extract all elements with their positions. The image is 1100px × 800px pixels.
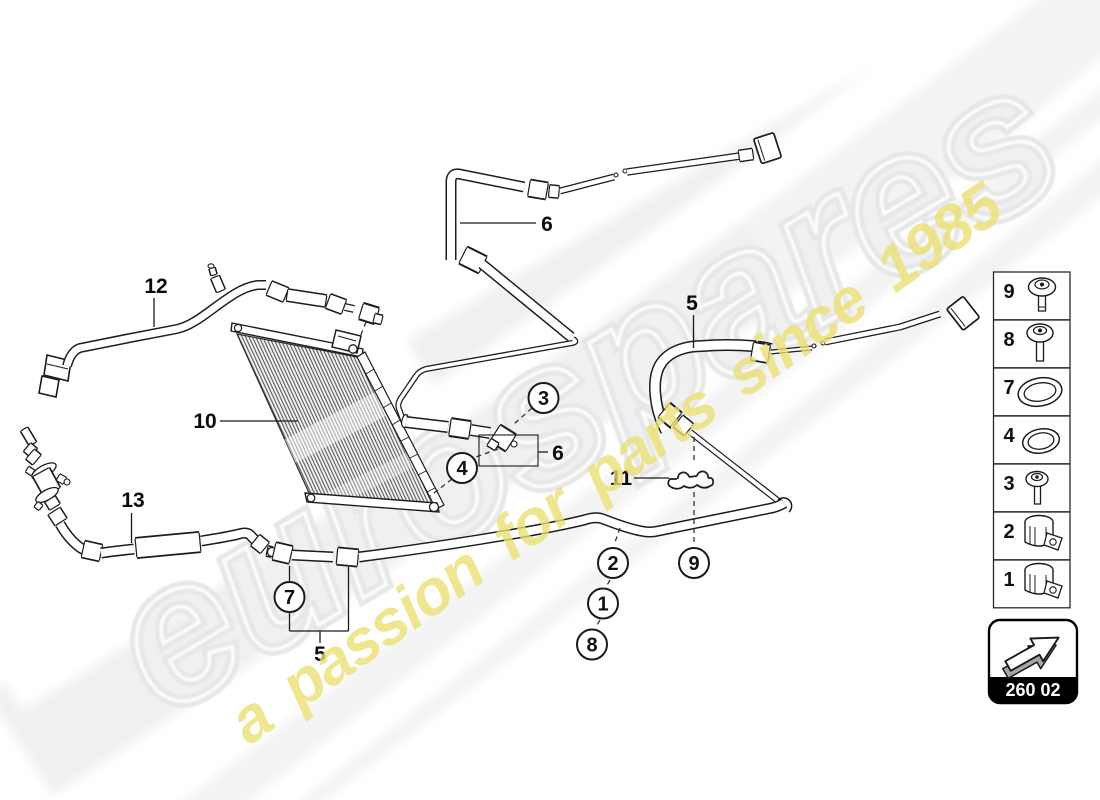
svg-text:7: 7 [284,587,295,609]
svg-text:1: 1 [597,594,608,616]
svg-text:9: 9 [1003,281,1014,303]
svg-text:5: 5 [686,292,698,315]
svg-text:2: 2 [607,553,618,575]
svg-text:260 02: 260 02 [1005,680,1060,700]
svg-text:4: 4 [456,458,468,480]
svg-text:7: 7 [1003,377,1014,399]
svg-text:9: 9 [688,553,699,575]
svg-text:6: 6 [541,213,553,236]
svg-text:3: 3 [538,388,549,410]
svg-text:8: 8 [1003,329,1014,351]
svg-text:12: 12 [144,275,167,298]
svg-text:4: 4 [1003,425,1015,447]
svg-text:2: 2 [1003,521,1014,543]
svg-text:13: 13 [121,489,144,512]
svg-text:10: 10 [193,410,216,433]
svg-text:3: 3 [1003,473,1014,495]
svg-text:1: 1 [1003,569,1014,591]
svg-text:8: 8 [586,635,597,657]
